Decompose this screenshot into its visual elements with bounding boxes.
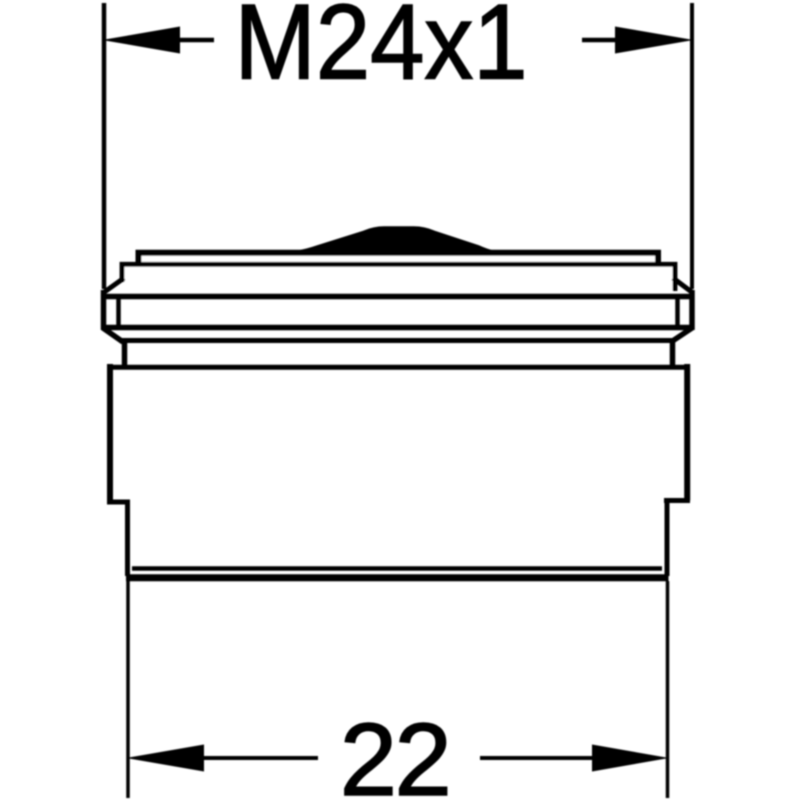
svg-text:22: 22 [340, 702, 450, 800]
svg-text:M24x1: M24x1 [235, 0, 528, 102]
